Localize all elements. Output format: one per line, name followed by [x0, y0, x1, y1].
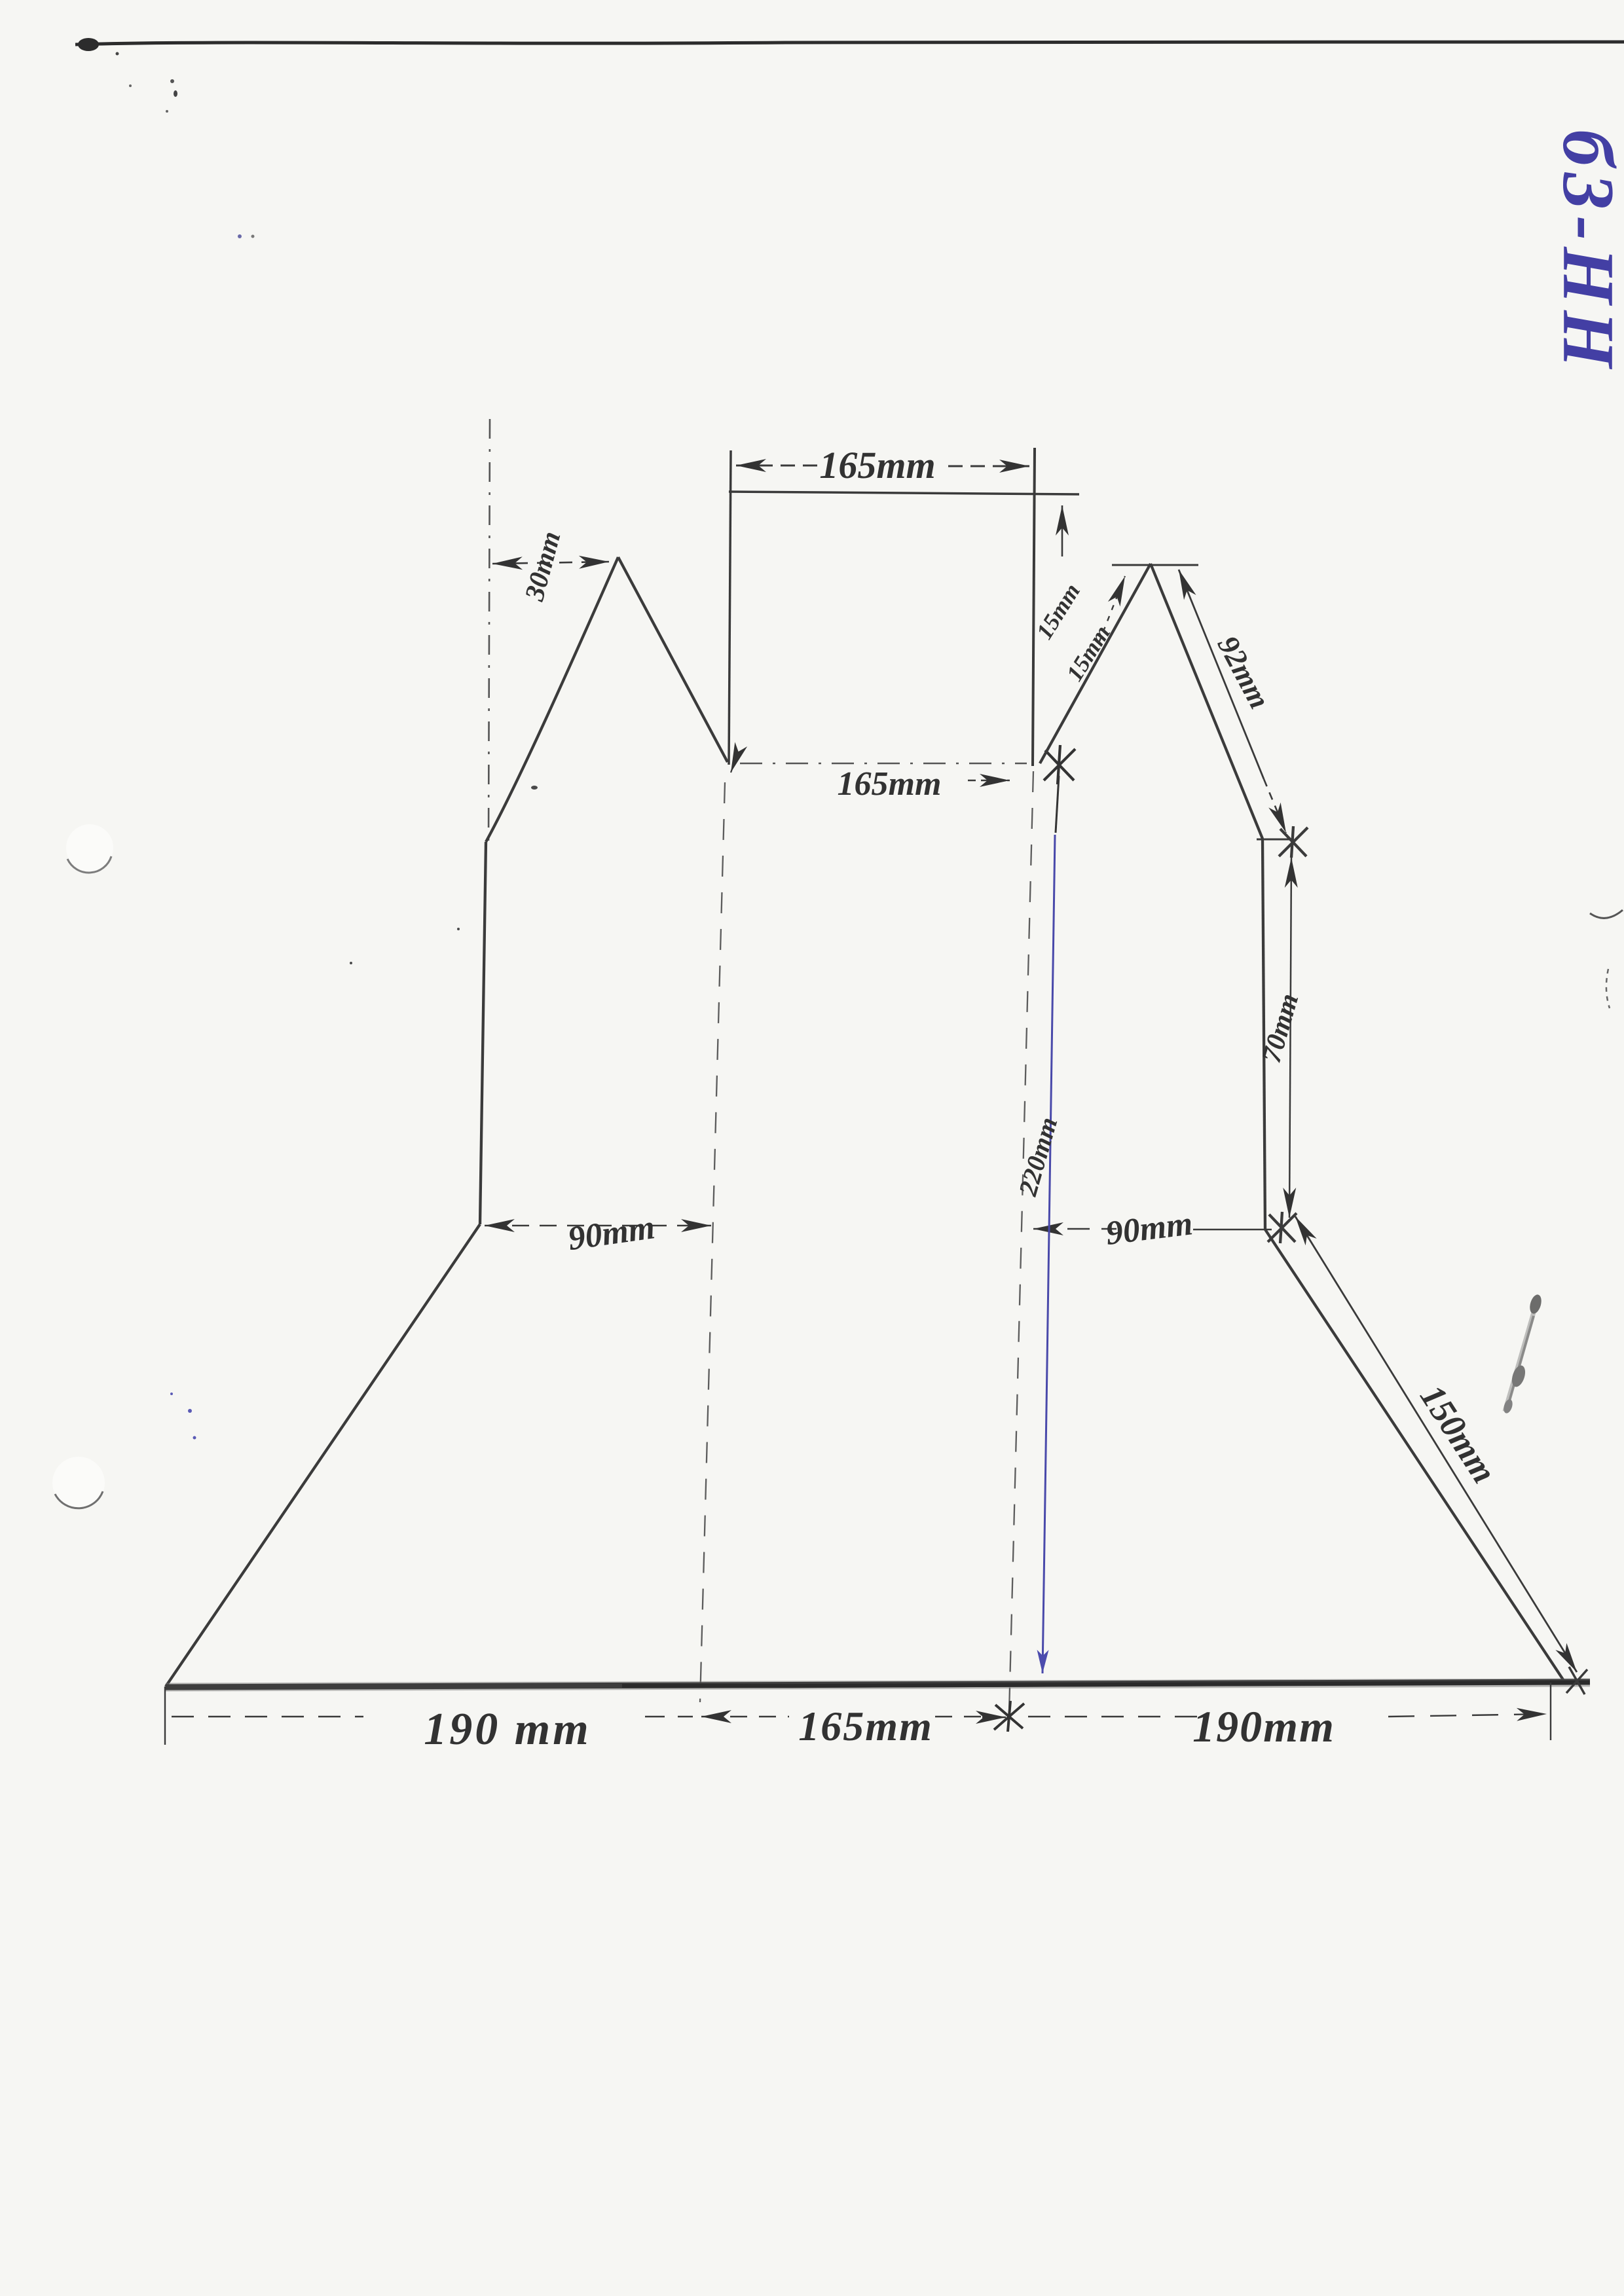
svg-text:190mm: 190mm [1192, 1702, 1335, 1751]
svg-text:165mm: 165mm [838, 765, 942, 803]
svg-text:15mm: 15mm [1031, 579, 1085, 644]
svg-text:220mm: 220mm [1012, 1114, 1063, 1199]
svg-text:30mm: 30mm [519, 528, 566, 605]
svg-text:190 mm: 190 mm [424, 1704, 591, 1755]
svg-text:165mm: 165mm [819, 444, 935, 486]
svg-text:90mm: 90mm [1104, 1205, 1195, 1252]
svg-text:90mm: 90mm [566, 1209, 657, 1258]
svg-text:б3-НН: б3-НН [1547, 130, 1624, 374]
svg-text:165mm: 165mm [798, 1703, 933, 1749]
